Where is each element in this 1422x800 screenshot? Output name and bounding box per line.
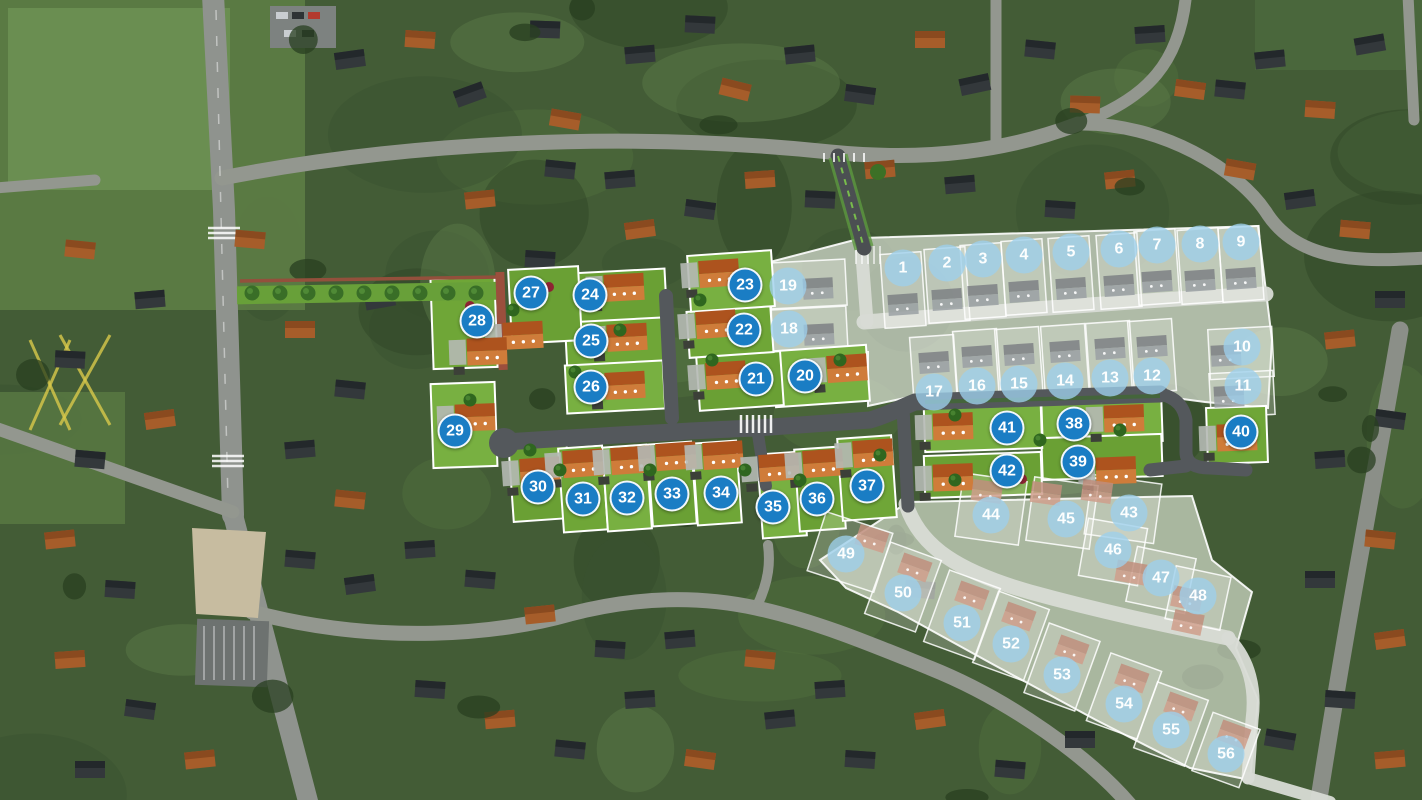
lot-marker-39[interactable]: 39 bbox=[1061, 445, 1096, 480]
lot-marker-29[interactable]: 29 bbox=[438, 414, 473, 449]
lot-marker-27[interactable]: 27 bbox=[514, 276, 549, 311]
lot-marker-28[interactable]: 28 bbox=[460, 304, 495, 339]
lot-marker-37[interactable]: 37 bbox=[850, 469, 885, 504]
lot-marker-42[interactable]: 42 bbox=[990, 454, 1025, 489]
lot-marker-33[interactable]: 33 bbox=[655, 477, 690, 512]
lot-marker-6[interactable]: 6 bbox=[1101, 231, 1138, 268]
lot-marker-10[interactable]: 10 bbox=[1224, 329, 1261, 366]
lot-marker-51[interactable]: 51 bbox=[944, 605, 981, 642]
lot-marker-36[interactable]: 36 bbox=[800, 482, 835, 517]
lot-marker-26[interactable]: 26 bbox=[574, 370, 609, 405]
lot-marker-15[interactable]: 15 bbox=[1001, 366, 1038, 403]
lot-marker-44[interactable]: 44 bbox=[973, 497, 1010, 534]
lot-marker-12[interactable]: 12 bbox=[1134, 358, 1171, 395]
lot-marker-19[interactable]: 19 bbox=[770, 268, 807, 305]
lot-marker-31[interactable]: 31 bbox=[566, 482, 601, 517]
lot-marker-49[interactable]: 49 bbox=[828, 536, 865, 573]
lot-markers-layer: 1234567891011121314151617181920212223242… bbox=[0, 0, 1422, 800]
lot-marker-4[interactable]: 4 bbox=[1006, 237, 1043, 274]
lot-marker-22[interactable]: 22 bbox=[727, 313, 762, 348]
lot-marker-3[interactable]: 3 bbox=[965, 241, 1002, 278]
lot-marker-35[interactable]: 35 bbox=[756, 490, 791, 525]
lot-marker-16[interactable]: 16 bbox=[959, 368, 996, 405]
lot-marker-5[interactable]: 5 bbox=[1053, 234, 1090, 271]
lot-marker-50[interactable]: 50 bbox=[885, 575, 922, 612]
lot-marker-1[interactable]: 1 bbox=[885, 250, 922, 287]
lot-marker-43[interactable]: 43 bbox=[1111, 495, 1148, 532]
lot-marker-55[interactable]: 55 bbox=[1153, 712, 1190, 749]
lot-marker-25[interactable]: 25 bbox=[574, 324, 609, 359]
lot-marker-24[interactable]: 24 bbox=[573, 278, 608, 313]
lot-marker-20[interactable]: 20 bbox=[788, 359, 823, 394]
lot-marker-30[interactable]: 30 bbox=[521, 470, 556, 505]
lot-marker-11[interactable]: 11 bbox=[1225, 368, 1262, 405]
lot-marker-53[interactable]: 53 bbox=[1044, 657, 1081, 694]
lot-marker-38[interactable]: 38 bbox=[1057, 407, 1092, 442]
lot-marker-17[interactable]: 17 bbox=[916, 374, 953, 411]
lot-marker-13[interactable]: 13 bbox=[1092, 360, 1129, 397]
lot-marker-14[interactable]: 14 bbox=[1047, 363, 1084, 400]
lot-marker-52[interactable]: 52 bbox=[993, 626, 1030, 663]
lot-marker-47[interactable]: 47 bbox=[1143, 560, 1180, 597]
aerial-site-plan: 1234567891011121314151617181920212223242… bbox=[0, 0, 1422, 800]
lot-marker-41[interactable]: 41 bbox=[990, 411, 1025, 446]
lot-marker-46[interactable]: 46 bbox=[1095, 532, 1132, 569]
lot-marker-23[interactable]: 23 bbox=[728, 268, 763, 303]
lot-marker-40[interactable]: 40 bbox=[1224, 415, 1259, 450]
lot-marker-45[interactable]: 45 bbox=[1048, 501, 1085, 538]
lot-marker-7[interactable]: 7 bbox=[1139, 227, 1176, 264]
lot-marker-21[interactable]: 21 bbox=[739, 362, 774, 397]
lot-marker-54[interactable]: 54 bbox=[1106, 686, 1143, 723]
lot-marker-48[interactable]: 48 bbox=[1180, 578, 1217, 615]
lot-marker-18[interactable]: 18 bbox=[771, 311, 808, 348]
lot-marker-56[interactable]: 56 bbox=[1208, 736, 1245, 773]
lot-marker-2[interactable]: 2 bbox=[929, 245, 966, 282]
lot-marker-8[interactable]: 8 bbox=[1182, 226, 1219, 263]
lot-marker-34[interactable]: 34 bbox=[704, 476, 739, 511]
lot-marker-9[interactable]: 9 bbox=[1223, 224, 1260, 261]
lot-marker-32[interactable]: 32 bbox=[610, 481, 645, 516]
